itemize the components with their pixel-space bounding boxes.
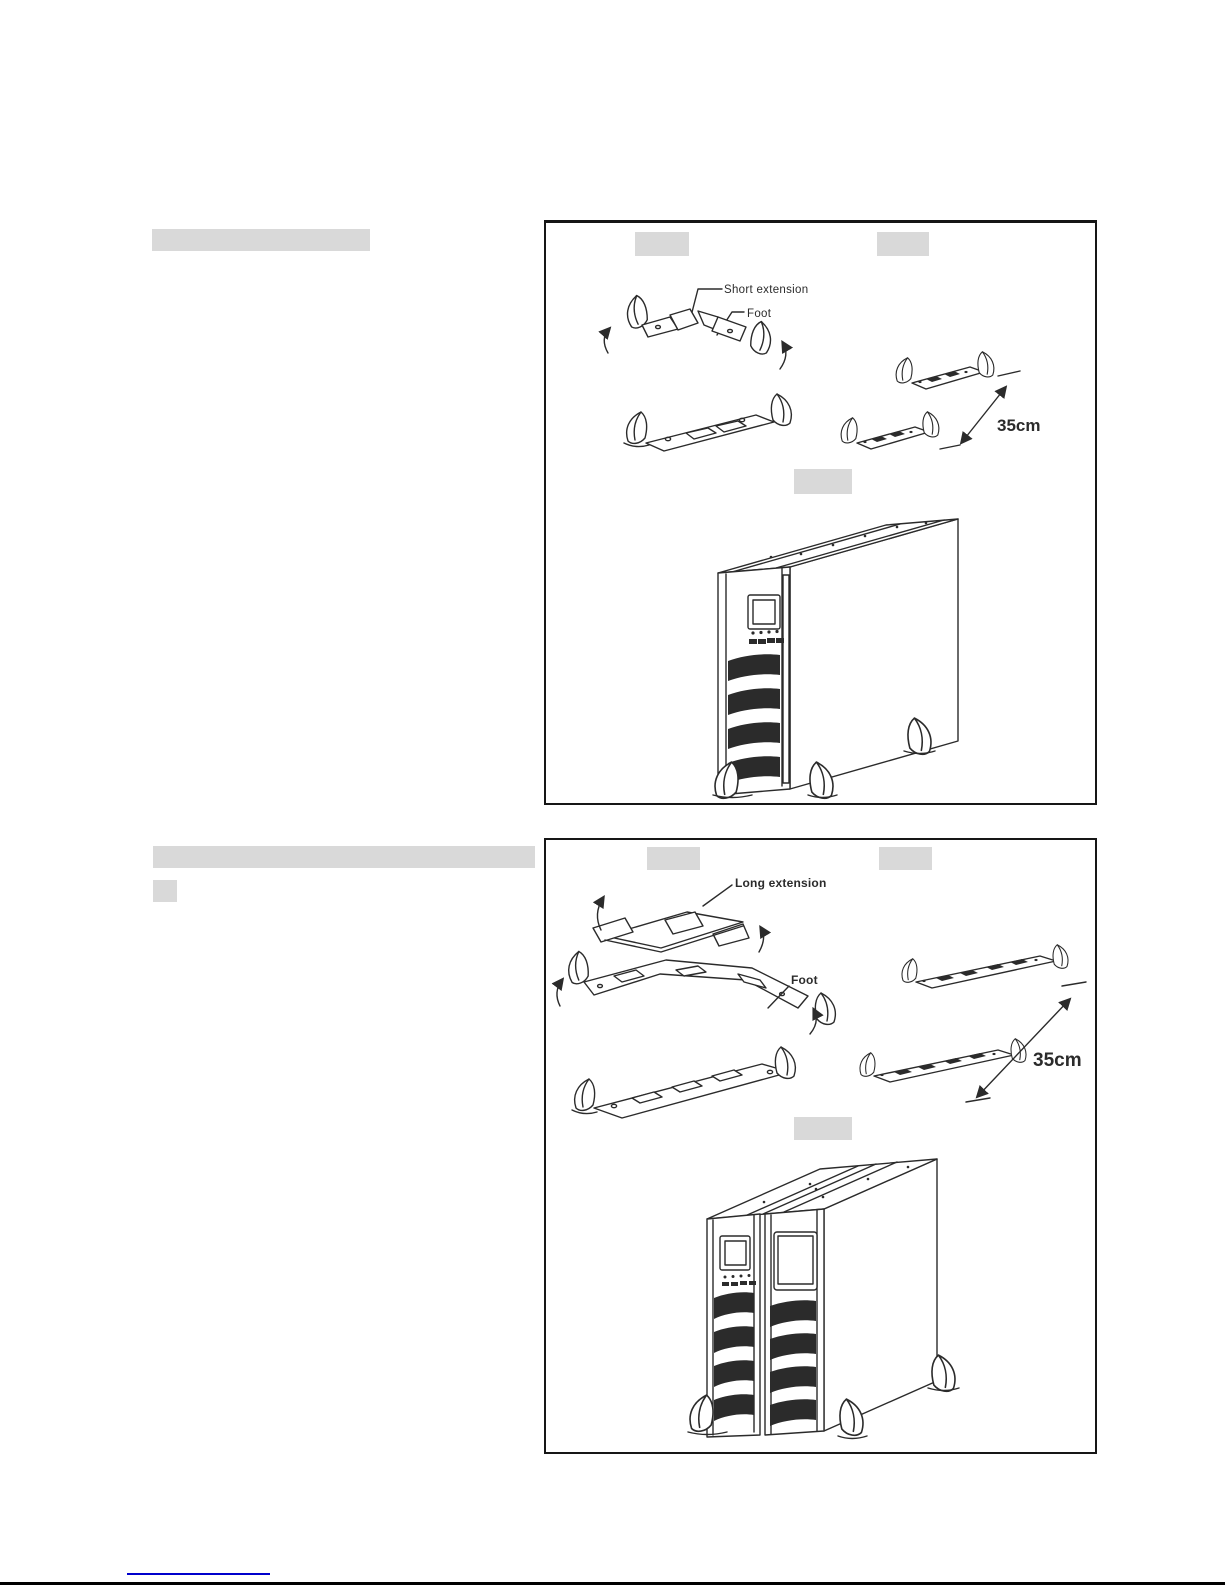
foot-label: Foot [791, 973, 818, 987]
panel-button [758, 639, 766, 644]
figure2-drawing: Long extension Foot [546, 840, 1095, 1452]
redaction-box [877, 232, 929, 256]
redaction-box [647, 847, 700, 870]
tower-ups-drawing [713, 519, 958, 798]
footer-link-underline[interactable] [127, 1573, 270, 1575]
redacted-heading-section1 [152, 229, 370, 251]
redaction-box [635, 232, 689, 256]
dimension-tick [1062, 982, 1086, 986]
redaction-box [879, 847, 932, 870]
panel-button [722, 1282, 729, 1286]
figure-dual-tower-installation: Long extension Foot [544, 838, 1097, 1454]
up-arrow [780, 343, 786, 369]
blank-panel-window [774, 1232, 817, 1290]
redaction-box [794, 469, 852, 494]
tower-foot [690, 1395, 713, 1431]
assembled-foot-drawing [572, 1047, 795, 1118]
tower-foot [932, 1355, 955, 1391]
placed-feet-drawing: 35cm [860, 945, 1086, 1102]
bent-foot-assembly-drawing [604, 294, 786, 369]
bent-foot-assembly-drawing [557, 950, 835, 1034]
panel-button [749, 1281, 756, 1285]
panel-button [731, 1282, 738, 1286]
panel-button [740, 1281, 747, 1285]
callout-long-extension: Long extension [703, 876, 826, 906]
redacted-marker-section2 [153, 880, 177, 902]
figure-single-tower-installation: Short extension Foot [544, 220, 1097, 805]
dual-tower-ups-drawing [688, 1159, 959, 1439]
distance-label: 35cm [1033, 1050, 1082, 1071]
short-extension-label: Short extension [724, 284, 808, 296]
redacted-heading-section2 [153, 846, 535, 868]
up-arrow [759, 928, 764, 952]
figure1-drawing: Short extension Foot [546, 223, 1095, 803]
dimension-tick [966, 1098, 990, 1102]
long-extension-drawing [593, 898, 764, 952]
distance-label: 35cm [997, 416, 1040, 435]
panel-button [767, 638, 775, 643]
distance-arrow [978, 1000, 1069, 1096]
up-arrow [557, 980, 562, 1006]
panel-button [749, 639, 757, 644]
placed-feet-drawing: 35cm [841, 352, 1040, 449]
leader-line [703, 885, 732, 906]
panel-button [776, 638, 784, 643]
foot-label: Foot [747, 308, 772, 320]
redaction-box [794, 1117, 852, 1140]
dimension-tick [940, 445, 960, 449]
up-arrow [604, 329, 609, 353]
up-arrow [810, 1010, 816, 1034]
manual-page: Short extension Foot [0, 0, 1225, 1585]
assembled-foot-drawing [624, 394, 791, 451]
dimension-tick [998, 371, 1020, 376]
long-extension-label: Long extension [735, 876, 826, 890]
